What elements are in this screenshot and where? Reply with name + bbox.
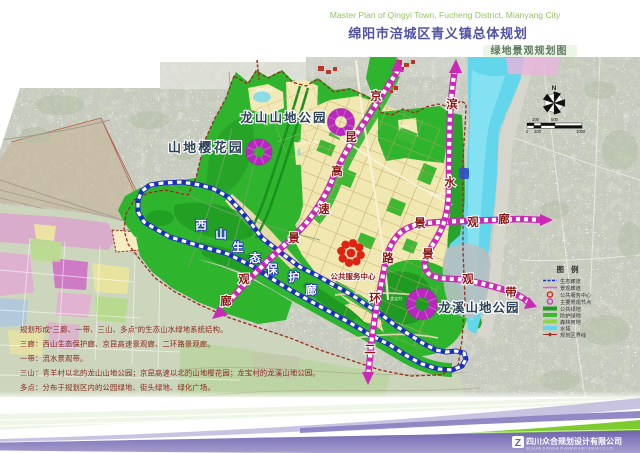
- svg-text:景: 景: [413, 217, 426, 230]
- svg-text:廊: 廊: [305, 283, 317, 297]
- svg-text:路: 路: [382, 251, 394, 265]
- svg-text:一带：流水景观带。: 一带：流水景观带。: [20, 354, 87, 363]
- svg-text:高: 高: [331, 164, 343, 178]
- svg-text:态: 态: [249, 251, 261, 265]
- svg-text:主要景观节点: 主要景观节点: [560, 298, 591, 306]
- svg-text:Z: Z: [515, 437, 522, 449]
- svg-text:1000: 1000: [576, 129, 586, 134]
- svg-text:公共绿地: 公共绿地: [560, 305, 581, 313]
- svg-text:100: 100: [532, 117, 540, 122]
- svg-text:青羊村水库: 青羊村水库: [298, 139, 318, 145]
- svg-text:龙山山地公园: 龙山山地公园: [239, 110, 327, 125]
- svg-text:多点：分布于规划区内的公园绿地、街头绿地、绿化广场。: 多点：分布于规划区内的公园绿地、街头绿地、绿化广场。: [20, 383, 215, 392]
- svg-text:四川众合规划设计有限公司: 四川众合规划设计有限公司: [526, 436, 622, 446]
- svg-text:图例: 图例: [557, 264, 586, 274]
- svg-text:水: 水: [444, 175, 456, 189]
- svg-text:白鹤林水库: 白鹤林水库: [253, 86, 273, 92]
- svg-text:三廊：西山生态保护廊、京昆高速景观廊、二环路景观廊。: 三廊：西山生态保护廊、京昆高速景观廊、二环路景观廊。: [20, 340, 215, 349]
- svg-text:龙宝村: 龙宝村: [390, 295, 402, 301]
- svg-text:生: 生: [232, 240, 244, 254]
- svg-text:公共服务中心: 公共服务中心: [560, 291, 591, 299]
- svg-text:景: 景: [287, 232, 300, 245]
- svg-text:观: 观: [467, 216, 479, 229]
- svg-text:护: 护: [288, 270, 300, 284]
- svg-text:山地樱花园: 山地樱花园: [168, 140, 244, 155]
- svg-text:观: 观: [462, 273, 474, 286]
- svg-text:生态廊道: 生态廊道: [560, 277, 581, 285]
- svg-text:滨: 滨: [446, 97, 458, 111]
- svg-text:龙溪山地公园: 龙溪山地公园: [437, 300, 519, 315]
- svg-text:500: 500: [551, 117, 559, 122]
- svg-text:景观廊道: 景观廊道: [560, 284, 581, 292]
- svg-text:京: 京: [370, 89, 382, 103]
- svg-text:Master Plan of Qingyi Town, Fu: Master Plan of Qingyi Town, Fucheng Dist…: [330, 10, 561, 20]
- svg-text:防护绿地: 防护绿地: [560, 312, 581, 320]
- svg-text:N: N: [552, 85, 557, 92]
- svg-text:绿地景观规划图: 绿地景观规划图: [491, 44, 568, 57]
- svg-text:森林用地: 森林用地: [560, 318, 581, 326]
- svg-text:龙山村: 龙山村: [398, 123, 410, 129]
- svg-text:二: 二: [364, 344, 376, 356]
- svg-text:西: 西: [195, 219, 207, 232]
- svg-text:廊: 廊: [220, 294, 232, 308]
- svg-text:SICHUAN ZHONGHE PLANNING AND D: SICHUAN ZHONGHE PLANNING AND DESIGN CO.,…: [526, 447, 614, 451]
- svg-text:200: 200: [534, 129, 542, 134]
- svg-text:山: 山: [215, 227, 227, 241]
- svg-text:景: 景: [421, 248, 434, 261]
- svg-text:规划区界线: 规划区界线: [560, 331, 586, 339]
- svg-text:速: 速: [318, 202, 330, 216]
- svg-text:环: 环: [369, 292, 381, 305]
- svg-text:绵阳市涪城区青义镇总体规划: 绵阳市涪城区青义镇总体规划: [348, 26, 527, 41]
- svg-text:保: 保: [265, 262, 278, 276]
- svg-text:三山：青羊村以北的龙山山地公园；京昆高速以北的山地樱花园；龙: 三山：青羊村以北的龙山山地公园；京昆高速以北的山地樱花园；龙宝村的龙溪山地公园。: [20, 369, 320, 378]
- svg-text:公共服务中心: 公共服务中心: [331, 271, 376, 281]
- svg-text:规划形成“三廊、一带、三山、多点”的生态山水绿地系统结构。: 规划形成“三廊、一带、三山、多点”的生态山水绿地系统结构。: [20, 325, 228, 334]
- svg-text:观: 观: [238, 273, 250, 286]
- svg-text:廊: 廊: [498, 212, 510, 226]
- svg-text:带: 带: [505, 285, 517, 299]
- svg-text:水域: 水域: [560, 325, 570, 333]
- svg-text:滨江绿带: 滨江绿带: [430, 191, 446, 197]
- svg-text:昆: 昆: [345, 131, 357, 144]
